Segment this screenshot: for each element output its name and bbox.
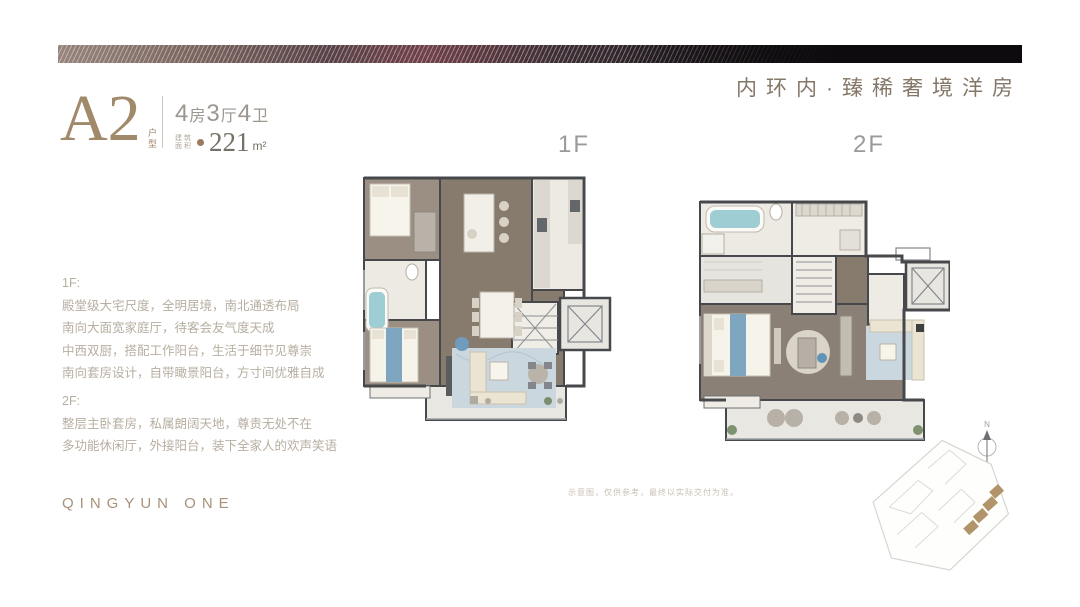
floor-plan-1f xyxy=(352,170,624,448)
area-label-line2: 面积 xyxy=(175,143,193,151)
floor-2-description: 2F: 整层主卧套房，私属朗阔天地，尊贵无处不在 多功能休闲厅，外接阳台，装下全… xyxy=(62,390,337,458)
floor-1-desc-heading: 1F: xyxy=(62,272,325,295)
brochure-page: 内环内·臻稀奢境洋房 A2 户型 4房3厅4卫 建筑 面积 221 m² 1F … xyxy=(0,0,1080,607)
unit-layout-spec: 4房3厅4卫 xyxy=(175,100,269,128)
svg-text:N: N xyxy=(984,420,990,429)
floor-1-description: 1F: 殿堂级大宅尺度，全明居境，南北通透布局 南向大面宽家庭厅，待客会友气度天… xyxy=(62,272,325,385)
halls-unit: 厅 xyxy=(221,108,237,125)
unit-area-spec: 建筑 面积 221 m² xyxy=(175,127,267,158)
unit-name: A2 xyxy=(60,84,141,154)
divider xyxy=(162,96,163,148)
baths-unit: 卫 xyxy=(252,108,268,125)
rooms-count: 4 xyxy=(175,100,188,127)
disclaimer-text: 示意图，仅供参考，最终以实际交付为准。 xyxy=(568,487,739,498)
floor-plan-2f xyxy=(690,196,950,444)
dining-table-icon xyxy=(472,292,522,338)
area-label-line1: 建筑 xyxy=(175,135,193,143)
floor-1-label: 1F xyxy=(558,131,590,159)
master-bed-icon xyxy=(704,314,781,376)
halls-count: 3 xyxy=(206,100,219,127)
area-unit: m² xyxy=(253,139,267,153)
unit-category-label: 户型 xyxy=(146,128,157,150)
tagline: 内环内·臻稀奢境洋房 xyxy=(736,72,1022,102)
floor-2-label: 2F xyxy=(853,131,885,159)
floor-2-desc-heading: 2F: xyxy=(62,390,337,413)
site-plan-inset xyxy=(858,438,1022,588)
decorative-stripe-bar xyxy=(58,45,1022,63)
area-value: 221 xyxy=(209,127,250,158)
rooms-unit: 房 xyxy=(189,108,205,125)
leisure-room-icons xyxy=(866,320,924,380)
desc-line: 多功能休闲厅，外接阳台，装下全家人的欢声笑语 xyxy=(62,435,337,458)
desc-line: 中西双厨，搭配工作阳台，生活于细节见尊崇 xyxy=(62,340,325,363)
desc-line: 殿堂级大宅尺度，全明居境，南北通透布局 xyxy=(62,295,325,318)
bed-secondary-icon xyxy=(370,328,418,382)
desc-line: 南向套房设计，自带瞰景阳台，方寸间优雅自成 xyxy=(62,362,325,385)
desc-line: 南向大面宽家庭厅，待客会友气度天成 xyxy=(62,317,325,340)
area-label: 建筑 面积 xyxy=(175,135,193,151)
desc-line: 整层主卧套房，私属朗阔天地，尊贵无处不在 xyxy=(62,413,337,436)
baths-count: 4 xyxy=(238,100,251,127)
brand-logo: QINGYUN ONE xyxy=(62,495,235,512)
bullet-dot-icon xyxy=(197,139,204,146)
